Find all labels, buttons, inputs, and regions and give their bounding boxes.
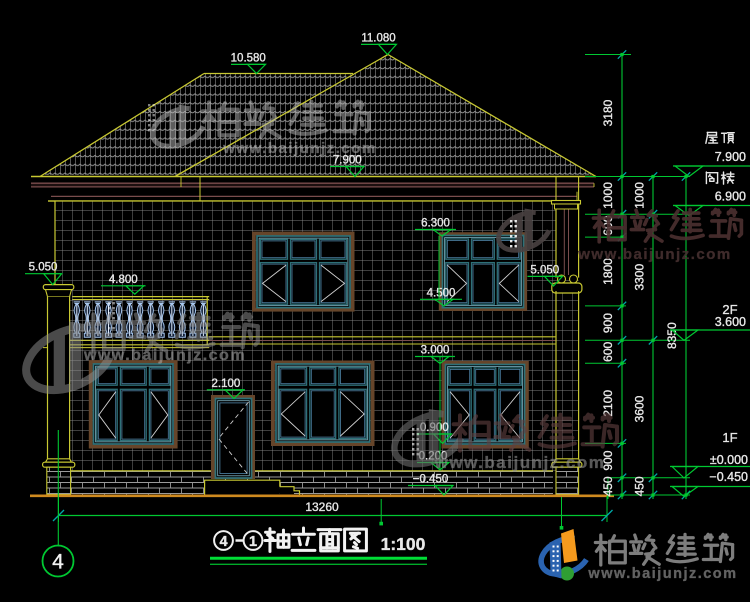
svg-text:3.600: 3.600	[715, 315, 746, 329]
svg-text:900: 900	[601, 313, 615, 333]
svg-text:450: 450	[633, 476, 647, 496]
svg-text:1000: 1000	[601, 182, 615, 209]
svg-text:13260: 13260	[305, 500, 339, 514]
svg-text:www.baijunjz.com: www.baijunjz.com	[577, 246, 731, 263]
svg-text:8350: 8350	[665, 322, 679, 349]
svg-text:4.800: 4.800	[109, 274, 138, 286]
svg-text:3180: 3180	[601, 99, 615, 126]
svg-text:−0.450: −0.450	[709, 470, 748, 484]
svg-text:1F: 1F	[722, 430, 737, 445]
svg-text:5.050: 5.050	[530, 264, 559, 276]
svg-text:4: 4	[52, 551, 64, 574]
svg-text:−0.450: −0.450	[413, 474, 449, 486]
svg-text:7.900: 7.900	[715, 150, 746, 164]
svg-text:3300: 3300	[633, 264, 647, 291]
svg-text:www.baijunjz.com: www.baijunjz.com	[222, 140, 376, 157]
svg-text:www.baijunjz.com: www.baijunjz.com	[587, 566, 737, 582]
svg-text:11.080: 11.080	[361, 32, 395, 44]
svg-text:www.baijunjz.com: www.baijunjz.com	[434, 453, 606, 472]
svg-text:6.300: 6.300	[421, 218, 450, 230]
svg-text:2100: 2100	[601, 390, 615, 417]
svg-text:±0.000: ±0.000	[710, 453, 748, 467]
svg-text:1: 1	[249, 534, 257, 550]
svg-text:450: 450	[601, 476, 615, 496]
svg-text:10.580: 10.580	[231, 52, 266, 64]
svg-text:5.050: 5.050	[29, 262, 58, 274]
svg-text:1:100: 1:100	[381, 534, 426, 554]
svg-text:2.100: 2.100	[212, 378, 241, 390]
svg-text:600: 600	[601, 341, 615, 361]
svg-text:4: 4	[219, 534, 227, 550]
svg-text:3.000: 3.000	[421, 345, 450, 357]
svg-text:6.900: 6.900	[715, 190, 746, 204]
svg-text:www.baijunjz.com: www.baijunjz.com	[83, 347, 246, 364]
svg-text:4.500: 4.500	[427, 287, 456, 299]
svg-text:3600: 3600	[633, 395, 647, 422]
svg-text:1000: 1000	[633, 182, 647, 209]
